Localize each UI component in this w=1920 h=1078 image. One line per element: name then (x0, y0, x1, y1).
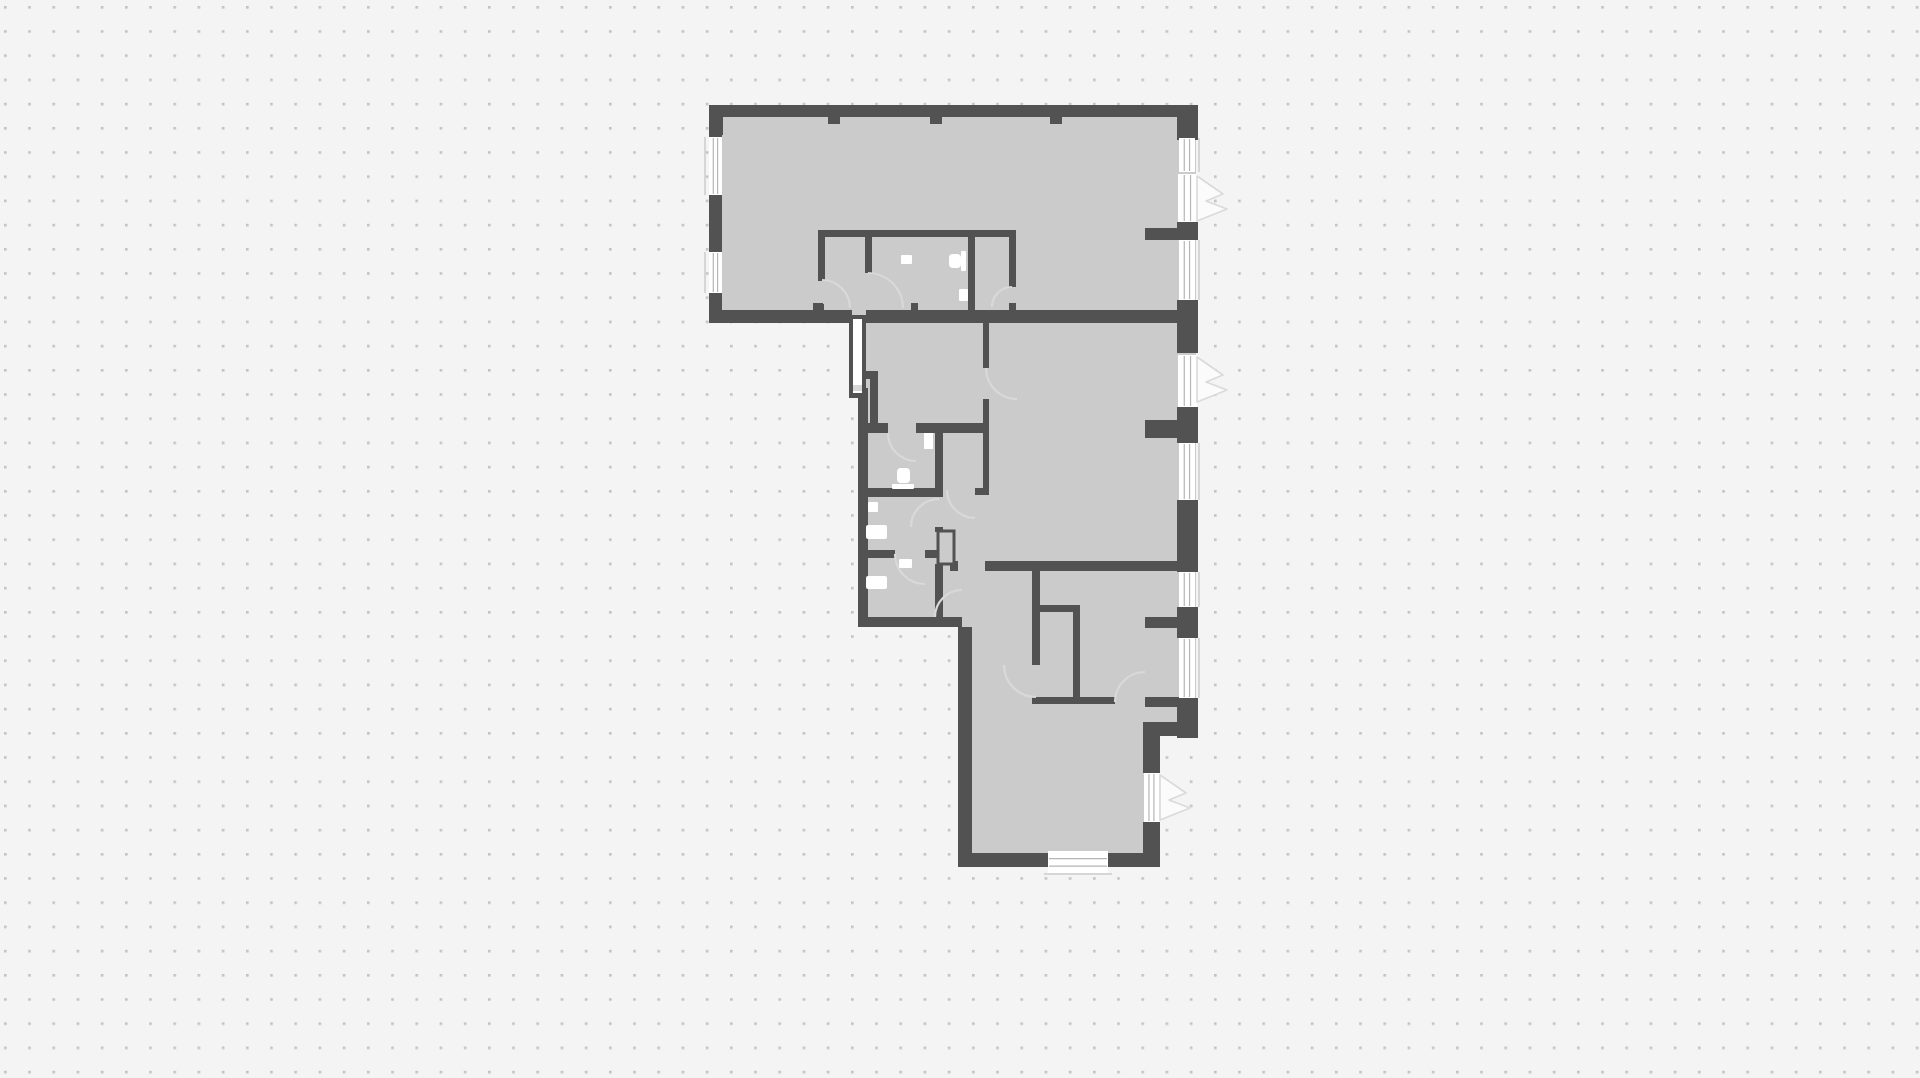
bottom-wall-left (958, 853, 1048, 867)
bottom-room-left-wall (958, 627, 972, 867)
door-leaf-bath1 (924, 433, 933, 449)
stub-top-room (1145, 228, 1177, 240)
shelf-bath3 (899, 559, 912, 568)
right-pier-4 (1177, 407, 1198, 443)
shaft-notch (853, 385, 862, 391)
window-right-1-sill (1198, 138, 1200, 172)
window-right-2 (1179, 240, 1195, 300)
tick-bottom-1 (813, 303, 823, 310)
right-pier-3 (1177, 300, 1198, 353)
left-wall-a (709, 117, 722, 137)
balcony-door-opening-top (1178, 174, 1197, 222)
bath1-bottom-wall (866, 488, 937, 497)
toilet-top-wc-tank (961, 251, 966, 271)
corridor-wall (935, 423, 943, 497)
closet-wall-v (1073, 612, 1080, 698)
window-bottom-1-sill (1044, 873, 1112, 875)
sink-top-wc-a (901, 255, 912, 264)
tick-bottom-2 (911, 303, 918, 310)
window-bottom-1 (1048, 851, 1108, 874)
shelf-bath2 (868, 502, 878, 512)
floor-plan-svg (0, 0, 1920, 1078)
stub-middle-room (1145, 420, 1177, 438)
window-right-1 (1179, 138, 1195, 172)
sink-bath3 (866, 576, 887, 589)
tick-top-1 (828, 117, 840, 124)
nook-v (870, 379, 878, 428)
window-right-2-sill (1198, 240, 1200, 300)
window-right-5-sill (1198, 638, 1200, 698)
floor-plan-canvas (0, 0, 1920, 1078)
top-block-bottom-wall-left (709, 310, 852, 323)
window-left-1 (709, 137, 722, 195)
bath2-bottom-wall-b (925, 550, 938, 558)
right-pier-1 (1177, 105, 1198, 140)
partition-vd-foot (1009, 303, 1016, 313)
lower-right-wall-a (1143, 736, 1160, 773)
sink-top-wc-b (959, 289, 968, 301)
tick-top-2 (930, 117, 942, 124)
right-pier-2 (1177, 222, 1198, 240)
window-right-3-sill (1198, 443, 1200, 500)
window-right-5 (1179, 638, 1195, 698)
bottom-block-wall-v1 (1032, 571, 1040, 665)
balcony-door-opening-bottom (1144, 773, 1159, 822)
toilet-bath1-base (892, 484, 914, 489)
closet-wall-h (1036, 605, 1080, 612)
sink-bath2 (866, 525, 887, 539)
window-left-2-sill (704, 252, 706, 293)
wing-bottom-wall (858, 617, 962, 627)
window-left-1-sill (704, 137, 706, 195)
mid-bottom-wall (985, 561, 1198, 571)
partition-vc (968, 237, 975, 313)
step-wall-h (1143, 722, 1198, 736)
bath2-bottom-wall-a (866, 550, 895, 558)
nook-h (866, 371, 878, 379)
entry-bottom-wall-b (916, 423, 983, 433)
shaft-inner (853, 319, 862, 393)
partition-vd (1009, 237, 1016, 287)
bottom-room-wall-h (1032, 697, 1115, 704)
window-right-3 (1179, 443, 1195, 500)
toilet-bath1-bowl (897, 468, 910, 483)
stub-step (1145, 697, 1180, 707)
window-left-2 (709, 252, 722, 293)
top-block-bottom-wall-right (866, 310, 1198, 323)
partition-va (818, 237, 825, 281)
entry-bottom-wall-a (866, 423, 888, 433)
partition-vb (865, 237, 872, 273)
hall-wall-mid (983, 399, 989, 488)
left-wall-b (709, 195, 722, 252)
duct-box (938, 531, 954, 564)
balcony-door-opening-middle (1178, 355, 1197, 407)
window-right-4 (1179, 572, 1195, 607)
tick-top-3 (1050, 117, 1062, 124)
hall-wall-top (983, 322, 989, 368)
top-wall (709, 105, 1198, 117)
toilet-top-wc-bowl (949, 254, 961, 268)
right-pier-6 (1177, 607, 1198, 638)
lower-right-wall-b (1143, 822, 1160, 867)
partition-h1 (818, 230, 1016, 237)
stub-bedroom (1145, 617, 1177, 628)
hall-wall-foot (975, 488, 989, 495)
window-right-4-sill (1198, 572, 1200, 607)
